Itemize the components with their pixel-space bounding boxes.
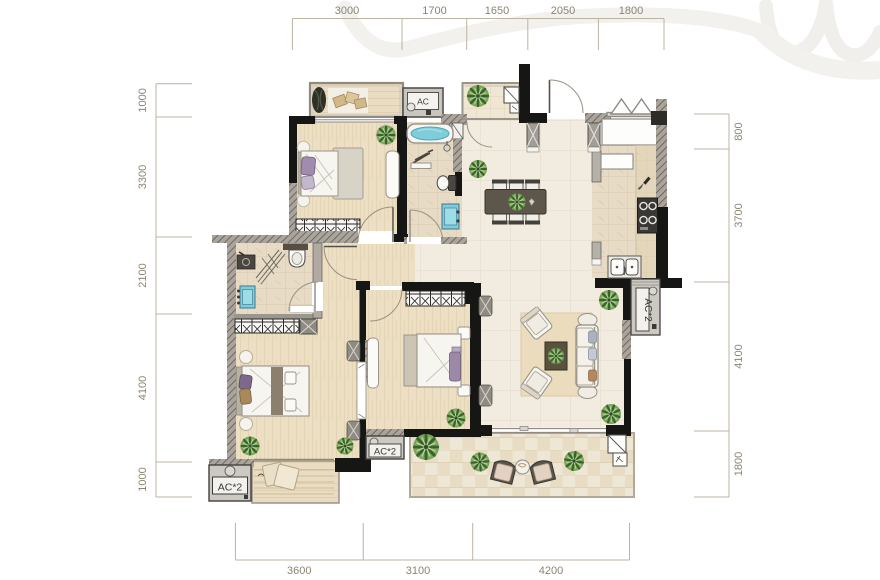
svg-text:1700: 1700	[422, 5, 446, 17]
svg-text:4100: 4100	[733, 344, 745, 368]
svg-text:AC*2: AC*2	[374, 447, 396, 458]
svg-text:800: 800	[733, 122, 745, 140]
svg-text:AC*2: AC*2	[218, 482, 243, 494]
svg-text:2050: 2050	[551, 5, 575, 17]
svg-text:AC*2: AC*2	[642, 298, 653, 322]
svg-text:1000: 1000	[137, 88, 149, 112]
svg-text:1800: 1800	[733, 452, 745, 476]
svg-text:1650: 1650	[485, 5, 509, 17]
svg-text:AC: AC	[417, 97, 429, 107]
svg-text:3300: 3300	[137, 165, 149, 189]
svg-text:1800: 1800	[619, 5, 643, 17]
svg-text:3100: 3100	[406, 565, 430, 577]
svg-text:1000: 1000	[137, 467, 149, 491]
svg-text:4200: 4200	[539, 565, 563, 577]
svg-text:3000: 3000	[335, 5, 359, 17]
svg-text:2100: 2100	[137, 263, 149, 287]
svg-text:3600: 3600	[287, 565, 311, 577]
svg-text:4100: 4100	[137, 376, 149, 400]
svg-text:3700: 3700	[733, 203, 745, 227]
